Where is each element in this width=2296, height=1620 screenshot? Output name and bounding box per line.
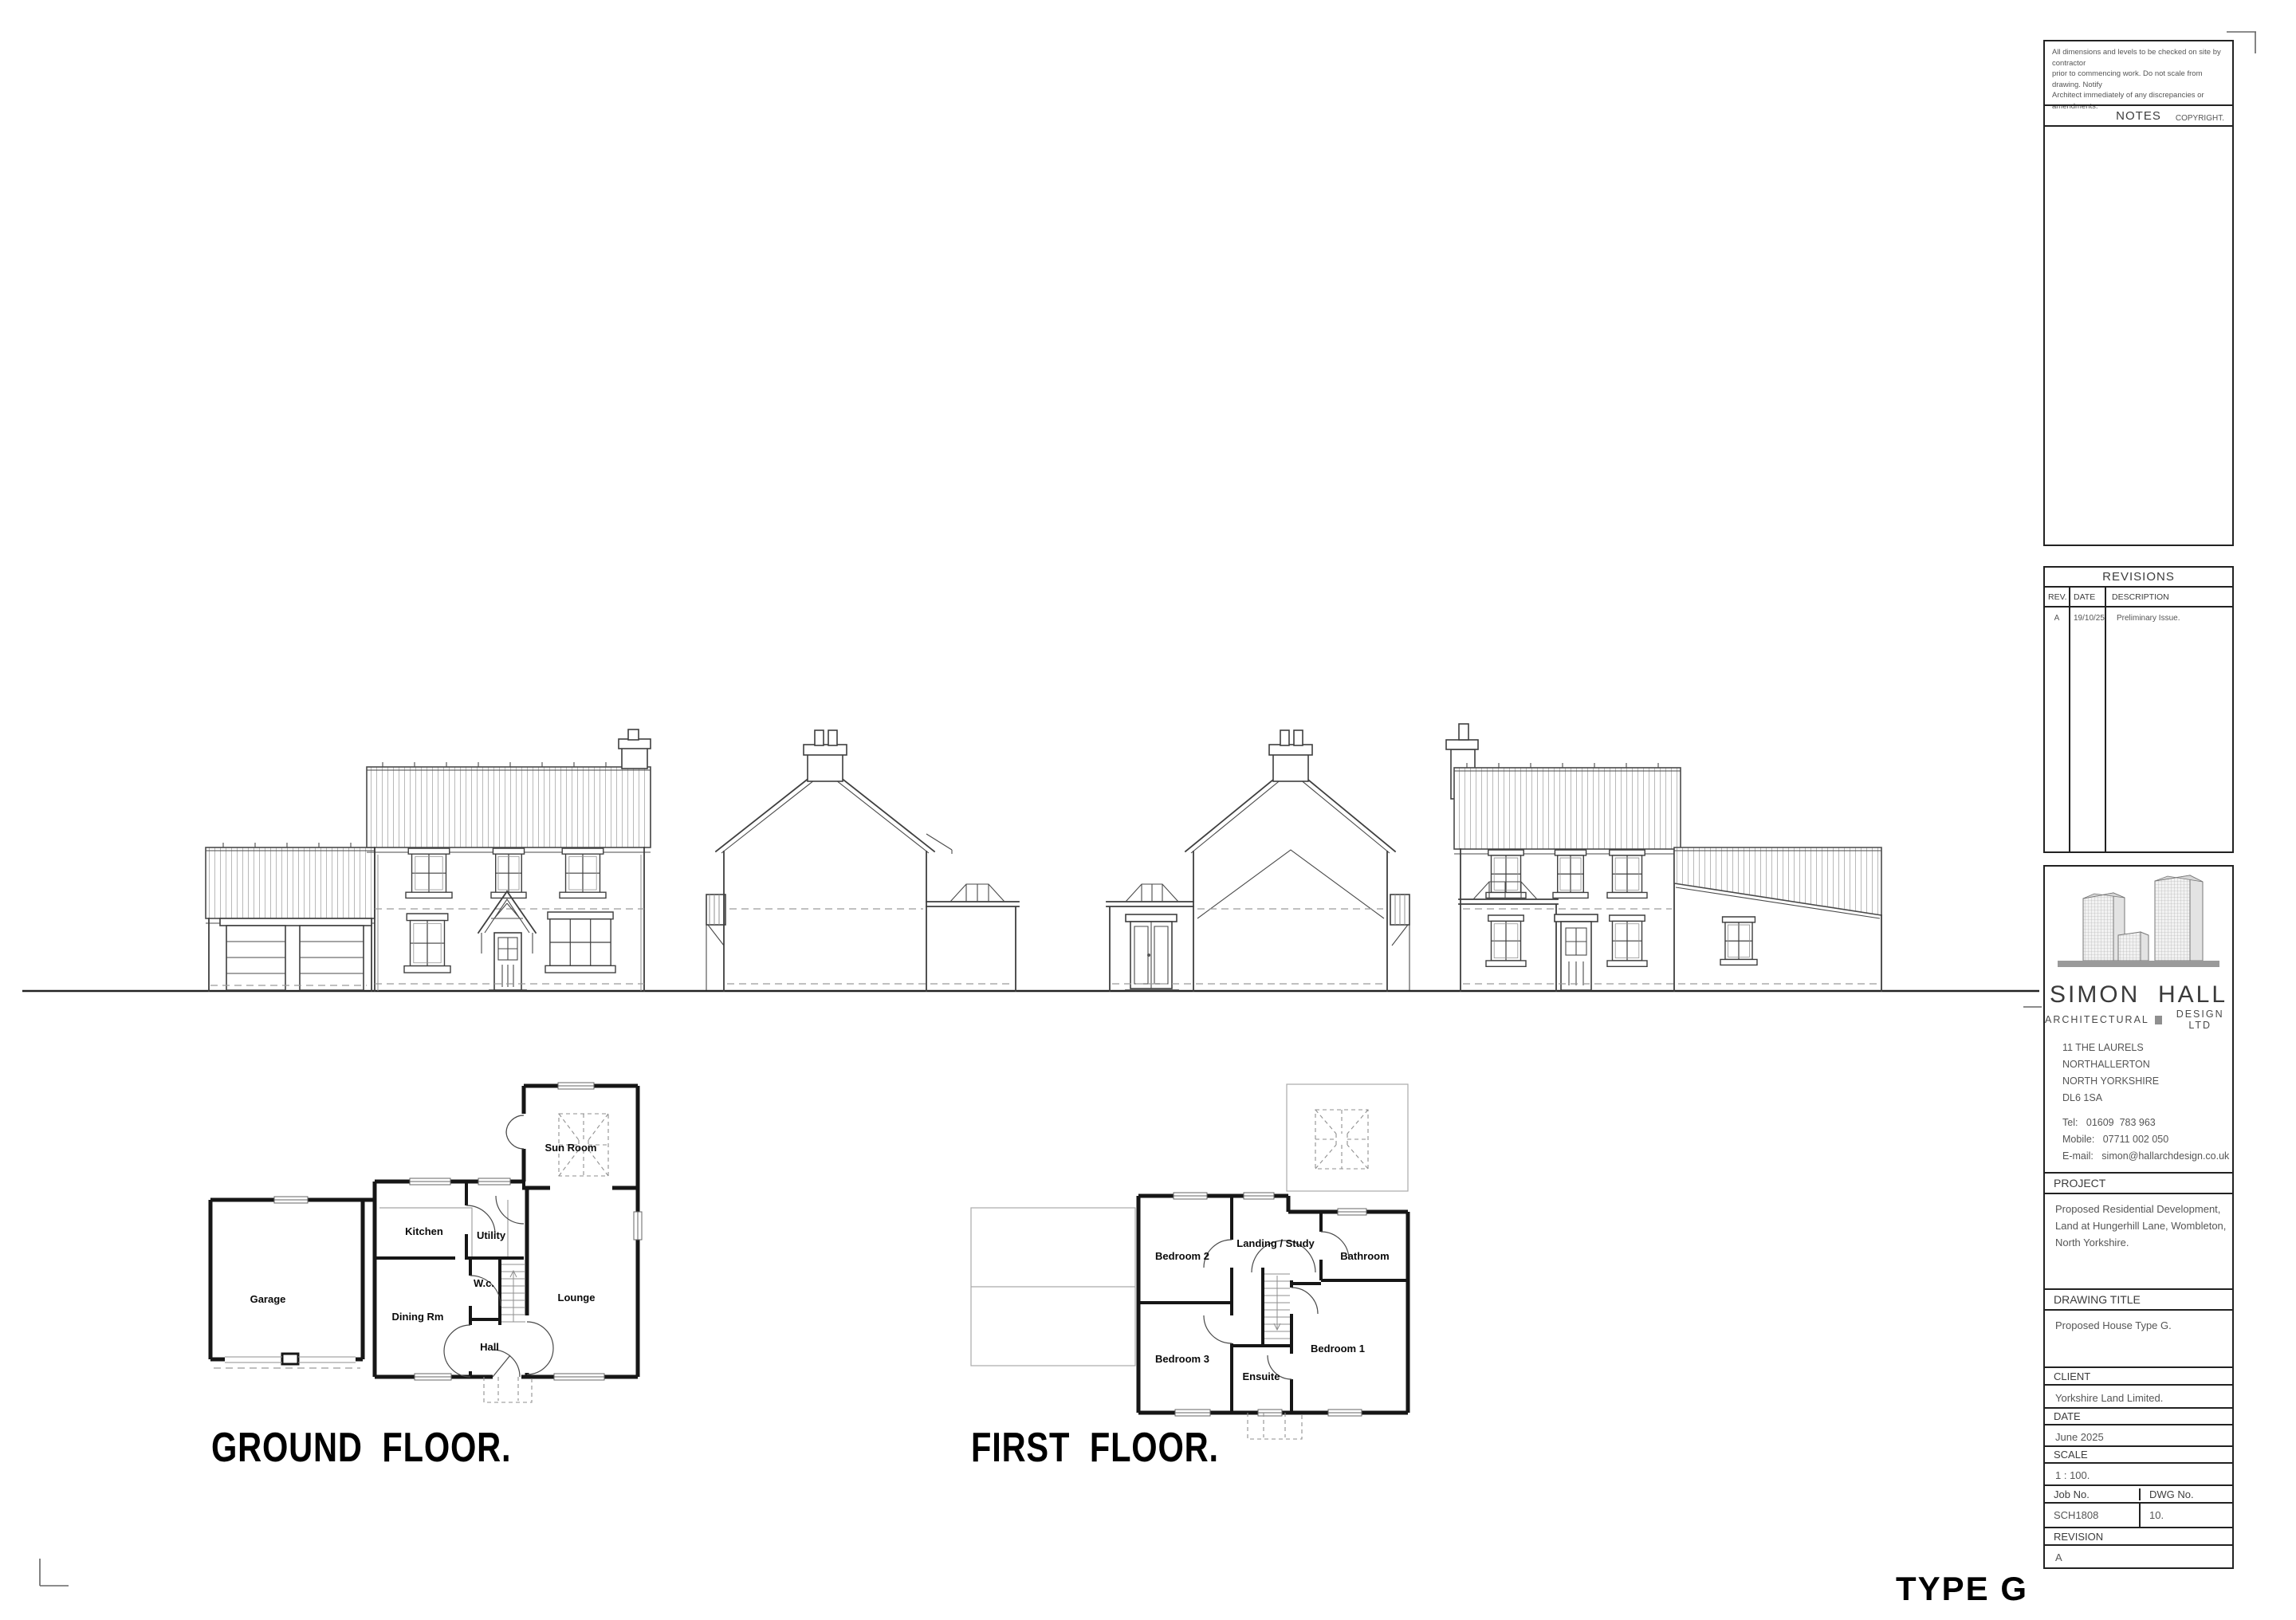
room-label-garage: Garage xyxy=(250,1293,286,1305)
client-header: CLIENT xyxy=(2045,1366,2232,1386)
company-logo: SIMON HALL ARCHITECTURAL DESIGN LTD xyxy=(2045,867,2232,1032)
revision-date: 19/10/25 xyxy=(2074,614,2105,623)
sash-window xyxy=(491,848,526,898)
job-no-value: SCH1808 xyxy=(2045,1504,2141,1527)
logo-buildings-icon xyxy=(2056,871,2221,980)
mobile-line: Mobile: 07711 002 050 xyxy=(2062,1131,2232,1148)
project-line: Land at Hungerhill Lane, Wombleton, xyxy=(2055,1217,2232,1234)
company-tagline: ARCHITECTURAL DESIGN LTD xyxy=(2045,1009,2232,1031)
sash-window xyxy=(1486,915,1526,966)
door-swings xyxy=(444,1115,553,1377)
porch-profile xyxy=(706,895,725,990)
plan-window xyxy=(1328,1410,1362,1416)
scale-header: SCALE xyxy=(2045,1445,2232,1464)
house-type-line1: TYPE G xyxy=(1896,1564,2028,1614)
room-label-wc: W.c. xyxy=(474,1277,494,1289)
porch-outline xyxy=(484,1377,532,1402)
job-no-header: Job No. xyxy=(2045,1488,2141,1500)
room-label-landing: Landing / Study xyxy=(1236,1237,1315,1249)
sun-room-profile xyxy=(926,884,1019,991)
address-line: NORTHALLERTON xyxy=(2062,1056,2232,1073)
rear-elevation xyxy=(1446,724,1881,991)
revisions-box: REVISIONS REV. DATE DESCRIPTION A 19/10/… xyxy=(2043,566,2234,853)
notes-box: All dimensions and levels to be checked … xyxy=(2043,40,2234,546)
first-floor-title: FIRST FLOOR. xyxy=(971,1424,1219,1472)
project-text: Proposed Residential Development, Land a… xyxy=(2045,1194,2232,1288)
dwg-no-header: DWG No. xyxy=(2141,1488,2232,1500)
address-line: 11 THE LAURELS xyxy=(2062,1040,2232,1056)
front-house xyxy=(367,729,651,991)
room-label-sun-room: Sun Room xyxy=(545,1142,597,1154)
room-label-hall: Hall xyxy=(480,1341,499,1353)
sash-window xyxy=(1553,850,1588,898)
phone-line: Tel: 01609 783 963 xyxy=(2062,1115,2232,1131)
col-description: DESCRIPTION xyxy=(2109,588,2232,606)
drawing-title-header: DRAWING TITLE xyxy=(2045,1288,2232,1311)
ground-floor-plan: Garage Kitchen Utility Sun Room W.c. Din… xyxy=(210,1083,642,1402)
revision-header: REVISION xyxy=(2045,1527,2232,1546)
tagline-left: ARCHITECTURAL xyxy=(2045,1014,2149,1025)
drawing-sheet: Garage Kitchen Utility Sun Room W.c. Din… xyxy=(0,0,2296,1620)
plan-window xyxy=(1244,1193,1274,1199)
garage-roof-outline xyxy=(971,1208,1135,1366)
sash-window xyxy=(1607,850,1647,898)
chimney xyxy=(619,729,651,769)
plan-window xyxy=(554,1374,604,1380)
sash-window xyxy=(406,848,452,898)
plan-window xyxy=(1175,1410,1210,1416)
bay-window xyxy=(545,912,615,973)
room-label-lounge: Lounge xyxy=(558,1292,596,1303)
address-line: NORTH YORKSHIRE xyxy=(2062,1073,2232,1090)
job-dwg-headers: Job No. DWG No. xyxy=(2045,1484,2232,1504)
date-header: DATE xyxy=(2045,1407,2232,1425)
plan-window xyxy=(478,1178,510,1185)
tagline-right: DESIGN LTD xyxy=(2168,1009,2232,1031)
plan-window xyxy=(1338,1209,1366,1215)
job-dwg-values: SCH1808 10. xyxy=(2045,1504,2232,1527)
first-floor-plan: Bedroom 2 Landing / Study Bathroom Bedro… xyxy=(971,1084,1408,1439)
address-line: DL6 1SA xyxy=(2062,1090,2232,1107)
notes-header: NOTES xyxy=(2043,104,2234,127)
room-label-dining: Dining Rm xyxy=(392,1311,444,1323)
disclaimer-line: prior to commencing work. Do not scale f… xyxy=(2052,69,2225,90)
garage-door xyxy=(300,926,364,990)
email-line: E-mail: simon@hallarchdesign.co.uk xyxy=(2062,1148,2232,1165)
company-name: SIMON HALL xyxy=(2045,981,2232,1009)
revisions-columns: REV. DATE DESCRIPTION xyxy=(2045,588,2232,607)
sash-window xyxy=(560,848,606,898)
room-label-bathroom: Bathroom xyxy=(1340,1250,1389,1262)
side-elevation-left xyxy=(706,730,1019,991)
room-label-bedroom2: Bedroom 2 xyxy=(1155,1250,1209,1262)
sash-window xyxy=(1486,850,1526,898)
project-line: Proposed Residential Development, xyxy=(2055,1201,2232,1217)
front-elevation xyxy=(206,729,651,991)
dwg-no-value: 10. xyxy=(2141,1504,2232,1527)
plan-window xyxy=(415,1374,451,1380)
sunroom-roof-outline xyxy=(1287,1084,1408,1191)
plan-window xyxy=(410,1178,450,1185)
chimney xyxy=(1269,730,1312,781)
sun-room-profile xyxy=(1107,884,1193,991)
porch-profile xyxy=(1390,895,1409,990)
plan-window xyxy=(634,1212,642,1240)
title-block: SIMON HALL ARCHITECTURAL DESIGN LTD 11 T… xyxy=(2043,865,2234,1569)
room-label-utility: Utility xyxy=(477,1229,506,1241)
project-header: PROJECT xyxy=(2045,1172,2232,1194)
revision-desc: Preliminary Issue. xyxy=(2117,614,2180,623)
square-icon xyxy=(2155,1016,2162,1024)
disclaimer-line: All dimensions and levels to be checked … xyxy=(2052,47,2225,69)
room-label-kitchen: Kitchen xyxy=(405,1225,443,1237)
revision-value: A xyxy=(2045,1546,2232,1567)
client-text: Yorkshire Land Limited. xyxy=(2045,1386,2232,1407)
door-swings xyxy=(1204,1232,1349,1379)
front-garage xyxy=(206,843,375,991)
sash-window xyxy=(1720,917,1757,965)
revision-rev: A xyxy=(2045,614,2069,623)
company-address: 11 THE LAURELS NORTHALLERTON NORTH YORKS… xyxy=(2045,1032,2232,1172)
sash-window xyxy=(404,914,450,973)
col-date: DATE xyxy=(2070,588,2105,606)
french-doors xyxy=(1126,914,1178,990)
room-label-bedroom3: Bedroom 3 xyxy=(1155,1353,1209,1365)
plan-window xyxy=(558,1083,594,1089)
plan-garage-walls xyxy=(210,1197,375,1368)
drawing-title-text: Proposed House Type G. xyxy=(2045,1311,2232,1366)
stairs-down xyxy=(1264,1274,1290,1339)
scale-text: 1 : 100. xyxy=(2045,1464,2232,1484)
plan-window xyxy=(1258,1410,1282,1416)
revisions-header: REVISIONS xyxy=(2043,566,2234,588)
disclaimer-text: All dimensions and levels to be checked … xyxy=(2045,41,2232,112)
plan-window xyxy=(274,1197,308,1203)
room-label-ensuite: Ensuite xyxy=(1243,1370,1280,1382)
front-door xyxy=(489,933,526,990)
plan-window xyxy=(1174,1193,1207,1199)
chimney xyxy=(804,730,847,781)
rear-garage xyxy=(1674,847,1881,991)
garage-door xyxy=(226,926,285,990)
revisions-divider xyxy=(2069,588,2070,851)
house-type-label: TYPE G 3 BED xyxy=(1896,1465,2028,1620)
back-door xyxy=(1555,914,1598,990)
drawing-canvas: Garage Kitchen Utility Sun Room W.c. Din… xyxy=(0,0,2296,1620)
project-line: North Yorkshire. xyxy=(2055,1234,2232,1251)
ground-floor-title: GROUND FLOOR. xyxy=(211,1424,511,1472)
revisions-divider xyxy=(2105,588,2106,851)
date-text: June 2025 xyxy=(2045,1425,2232,1445)
porch-outline xyxy=(1248,1413,1302,1439)
col-rev: REV. xyxy=(2045,588,2069,606)
sash-window xyxy=(1607,915,1647,966)
plan-internal-walls xyxy=(375,1182,524,1377)
side-elevation-right xyxy=(1107,730,1409,991)
stairs-up xyxy=(501,1200,525,1322)
room-label-bedroom1: Bedroom 1 xyxy=(1311,1343,1365,1355)
